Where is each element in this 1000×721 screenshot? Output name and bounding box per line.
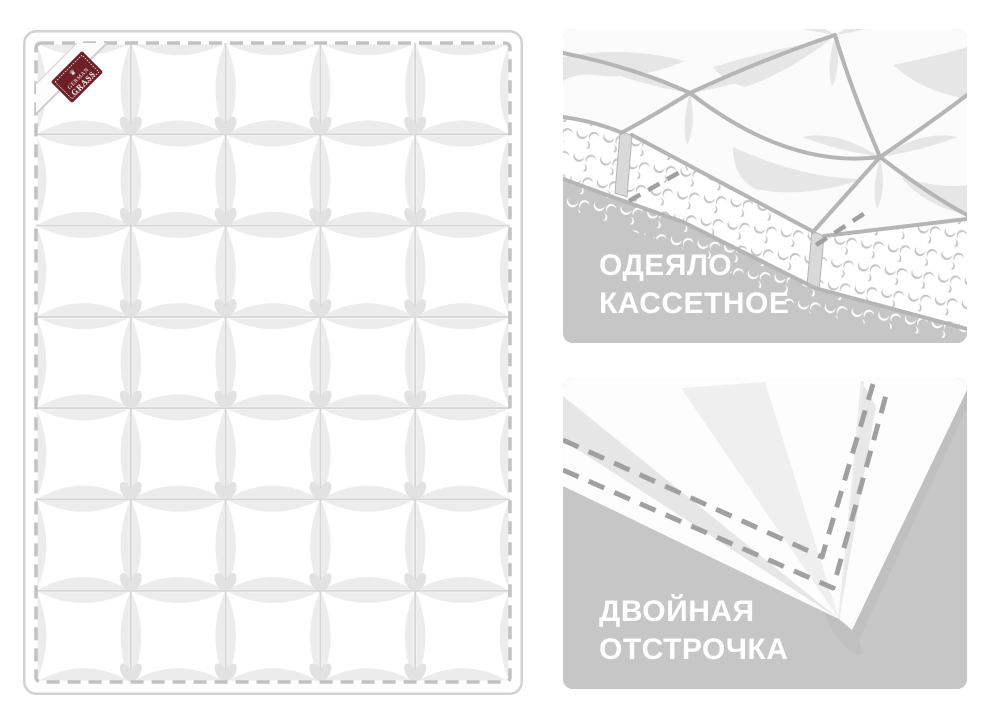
- double-stitch-caption: ДВОЙНАЯ ОТСТРОЧКА: [599, 593, 788, 669]
- cassette-caption: ОДЕЯЛО КАССЕТНОЕ: [599, 247, 789, 323]
- cassette-caption-line2: КАССЕТНОЕ: [599, 285, 789, 323]
- double-stitch-panel: ДВОЙНАЯ ОТСТРОЧКА: [563, 378, 967, 689]
- cassette-panel: ОДЕЯЛО КАССЕТНОЕ: [563, 29, 967, 343]
- double-stitch-caption-line1: ДВОЙНАЯ: [599, 593, 788, 631]
- double-stitch-caption-line2: ОТСТРОЧКА: [599, 631, 788, 669]
- cassette-caption-line1: ОДЕЯЛО: [599, 247, 789, 285]
- product-illustration: ♛ GERMAN GRASS: [0, 0, 1000, 721]
- quilt-drawing: ♛ GERMAN GRASS: [23, 30, 523, 695]
- quilt-figure: ♛ GERMAN GRASS: [23, 30, 523, 695]
